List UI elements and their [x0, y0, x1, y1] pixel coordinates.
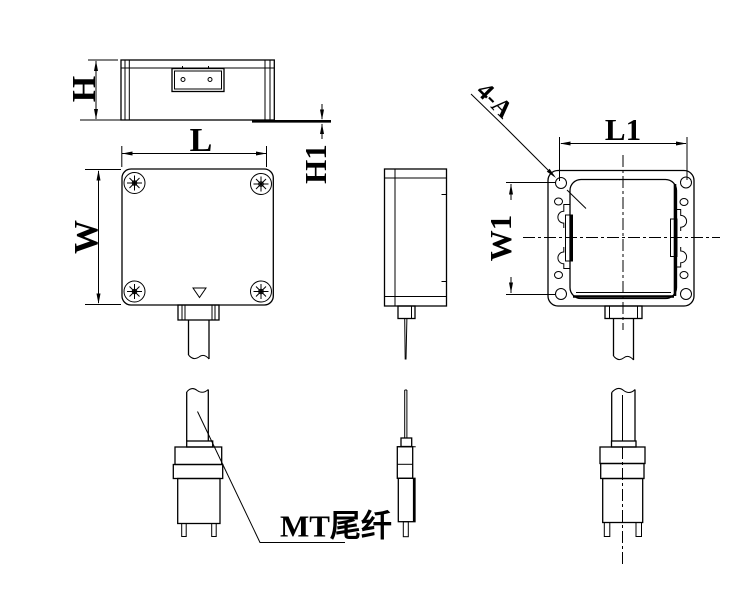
side-connector-stub	[398, 306, 415, 319]
dim-label-l: L	[190, 122, 213, 159]
dimension-arrow	[94, 109, 98, 120]
screw-top-left	[124, 173, 145, 194]
dimension-arrow	[560, 142, 571, 146]
dim-label-h: H	[66, 76, 103, 102]
dimension-w: W	[68, 170, 121, 305]
connector-cable	[187, 389, 209, 441]
mount-hole-top-left	[556, 178, 567, 189]
dimension-arrow	[97, 294, 101, 305]
connector-pin	[182, 524, 187, 537]
small-hole	[555, 272, 563, 279]
mt-pigtail-label: MT尾纤	[280, 509, 392, 544]
dimension-arrow	[94, 61, 98, 72]
screw-top-right	[251, 174, 272, 195]
orientation-triangle	[193, 288, 206, 298]
small-hole	[555, 198, 563, 205]
dimension-w1: W1	[483, 183, 555, 295]
front-connector-stub	[178, 305, 219, 320]
dimension-h: H	[66, 60, 118, 120]
mount-hole-bottom-right	[681, 289, 692, 300]
latch-profile-left	[558, 247, 570, 269]
small-hole	[680, 272, 688, 279]
front-cable	[189, 320, 210, 359]
leader-line	[505, 127, 554, 176]
dimension-l: L	[122, 122, 267, 167]
engineering-drawing: H H1 L	[0, 0, 756, 592]
connector-pin	[604, 523, 610, 537]
side-fiber	[405, 319, 407, 360]
connector-back-view	[600, 388, 645, 566]
cable-break	[189, 355, 210, 359]
dim-label-l1: L1	[605, 112, 641, 147]
view-front	[122, 169, 273, 359]
connector-front-view	[173, 389, 222, 537]
screw-bottom-right	[251, 281, 272, 302]
view-side	[385, 169, 447, 360]
connector-pin	[636, 523, 642, 537]
dimension-arrow	[320, 110, 324, 121]
cable-break	[612, 388, 635, 392]
cable-break	[187, 389, 209, 393]
mount-hole-top-right	[681, 177, 692, 188]
connector-pin	[212, 524, 217, 537]
dimension-arrow	[122, 152, 133, 156]
latch-profile-right	[677, 247, 687, 267]
cable-break	[614, 356, 634, 360]
view-top-elevation	[80, 60, 331, 121]
dimension-arrow	[509, 283, 513, 294]
latch-profile-left	[558, 205, 570, 229]
mount-hole-bottom-left	[556, 289, 567, 300]
annotation-mt-pigtail: MT尾纤	[198, 412, 392, 544]
connector-fiber	[405, 390, 407, 438]
dimension-h1: H1	[298, 104, 333, 184]
dimension-arrow	[509, 184, 513, 195]
cad-drawing-canvas: H H1 L	[0, 0, 756, 592]
dimension-arrow	[256, 152, 267, 156]
dimension-arrow	[97, 170, 101, 181]
screw-bottom-left	[124, 281, 145, 302]
dim-label-w: W	[68, 220, 105, 254]
view-back	[523, 155, 720, 360]
dimension-arrow	[676, 142, 687, 146]
dim-label-w1: W1	[483, 215, 518, 262]
connector-pin	[403, 522, 408, 537]
connector-cable	[612, 388, 635, 441]
label-plate	[172, 66, 224, 92]
dim-label-h1: H1	[298, 144, 333, 184]
dimension-arrow	[320, 124, 324, 135]
connector-side-view	[397, 390, 415, 537]
latch-profile-right	[677, 210, 687, 232]
small-hole	[680, 199, 688, 206]
